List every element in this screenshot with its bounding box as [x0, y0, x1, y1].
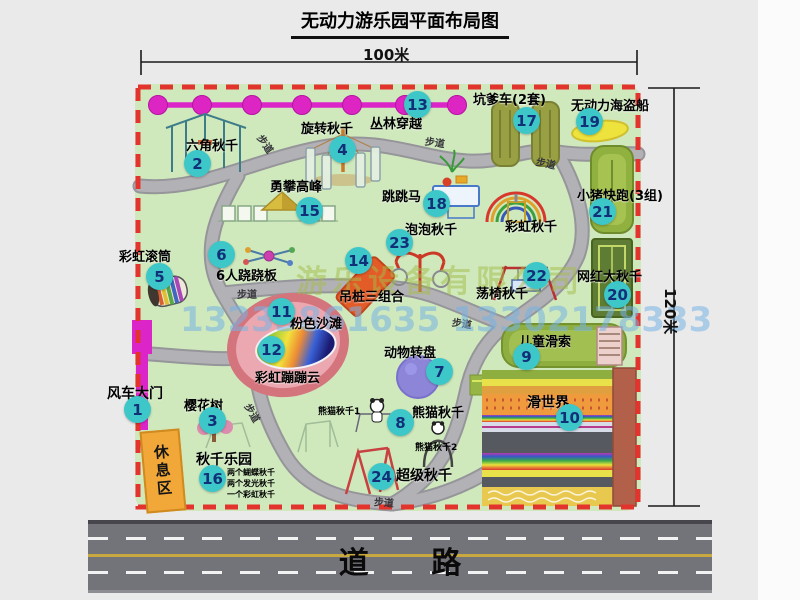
rest-area: 休息区: [140, 428, 187, 513]
item-12-label: 彩虹蹦蹦云: [255, 367, 320, 386]
item-15-label: 勇攀高峰: [270, 176, 322, 195]
item-16-label: 秋千乐园: [196, 449, 252, 469]
item-5-badge: 5: [146, 263, 173, 290]
item-12-badge: 12: [258, 336, 285, 363]
item-11-label: 粉色沙滩: [290, 313, 342, 332]
page-title-text: 无动力游乐园平面布局图: [291, 7, 509, 39]
park-layout-screenshot: 游乐设备有限公司 13233861635 13302178333 无动力游乐园平…: [0, 0, 800, 600]
trail-label: 步道: [237, 286, 257, 301]
height-dimension-label: 120米: [660, 288, 681, 334]
item-4-badge: 4: [329, 136, 356, 163]
item-17-badge: 17: [513, 107, 540, 134]
item-1-badge: 1: [124, 396, 151, 423]
item-18-label: 跳跳马: [382, 186, 421, 205]
swing-park-note-3: 一个彩虹秋千: [227, 489, 275, 500]
item-18-badge: 18: [423, 190, 450, 217]
slide-world-sketch: [470, 368, 636, 506]
item-7-badge: 7: [426, 358, 453, 385]
item-21-label: 小猪快跑(3组): [577, 185, 663, 204]
item-5-label: 彩虹滚筒: [119, 246, 171, 265]
item-23-badge: 23: [386, 229, 413, 256]
page-title: 无动力游乐园平面布局图: [0, 7, 800, 39]
phone-watermark: 13233861635 13302178333: [180, 300, 712, 340]
item-10-badge: 10: [556, 404, 583, 431]
panda-swing-2-label: 熊猫秋千2: [415, 440, 457, 453]
item-7-label: 动物转盘: [384, 342, 436, 361]
item-24-label: 超级秋千: [396, 465, 452, 485]
road: 道 路: [88, 520, 712, 593]
item-14-label: 吊桩三组合: [339, 286, 404, 305]
item-11-badge: 11: [268, 298, 295, 325]
item-19-badge: 19: [576, 108, 603, 135]
item-22-badge: 22: [523, 262, 550, 289]
item-4-label: 旋转秋千: [301, 118, 353, 137]
item-22-label: 荡椅秋千: [476, 283, 528, 302]
panda-swing-1-label: 熊猫秋千1: [318, 404, 360, 417]
item-14-badge: 14: [345, 247, 372, 274]
item-13-badge: 13: [404, 91, 431, 118]
swing-park-note-2: 两个发光秋千: [227, 478, 275, 489]
item-23-label: 泡泡秋千: [405, 219, 457, 238]
item-20-badge: 20: [604, 281, 631, 308]
item-8-label: 熊猫秋千: [412, 402, 464, 421]
rainbow-swing-label: 彩虹秋千: [505, 216, 557, 235]
item-8-badge: 8: [387, 409, 414, 436]
trail-label: 步道: [424, 133, 446, 151]
road-label: 道 路: [88, 538, 712, 582]
item-16-badge: 16: [199, 465, 226, 492]
item-21-badge: 21: [589, 198, 616, 225]
item-17-label: 坑爹车(2套): [473, 89, 546, 108]
item-2-badge: 2: [184, 150, 211, 177]
swing-park-note-1: 两个蝴蝶秋千: [227, 467, 275, 478]
item-15-badge: 15: [296, 197, 323, 224]
item-6-badge: 6: [208, 241, 235, 268]
trail-label: 步道: [374, 493, 395, 509]
width-dimension-label: 100米: [363, 44, 409, 65]
item-3-badge: 3: [199, 407, 226, 434]
item-9-badge: 9: [513, 343, 540, 370]
item-24-badge: 24: [368, 463, 395, 490]
item-6-label: 6人跷跷板: [216, 265, 277, 284]
